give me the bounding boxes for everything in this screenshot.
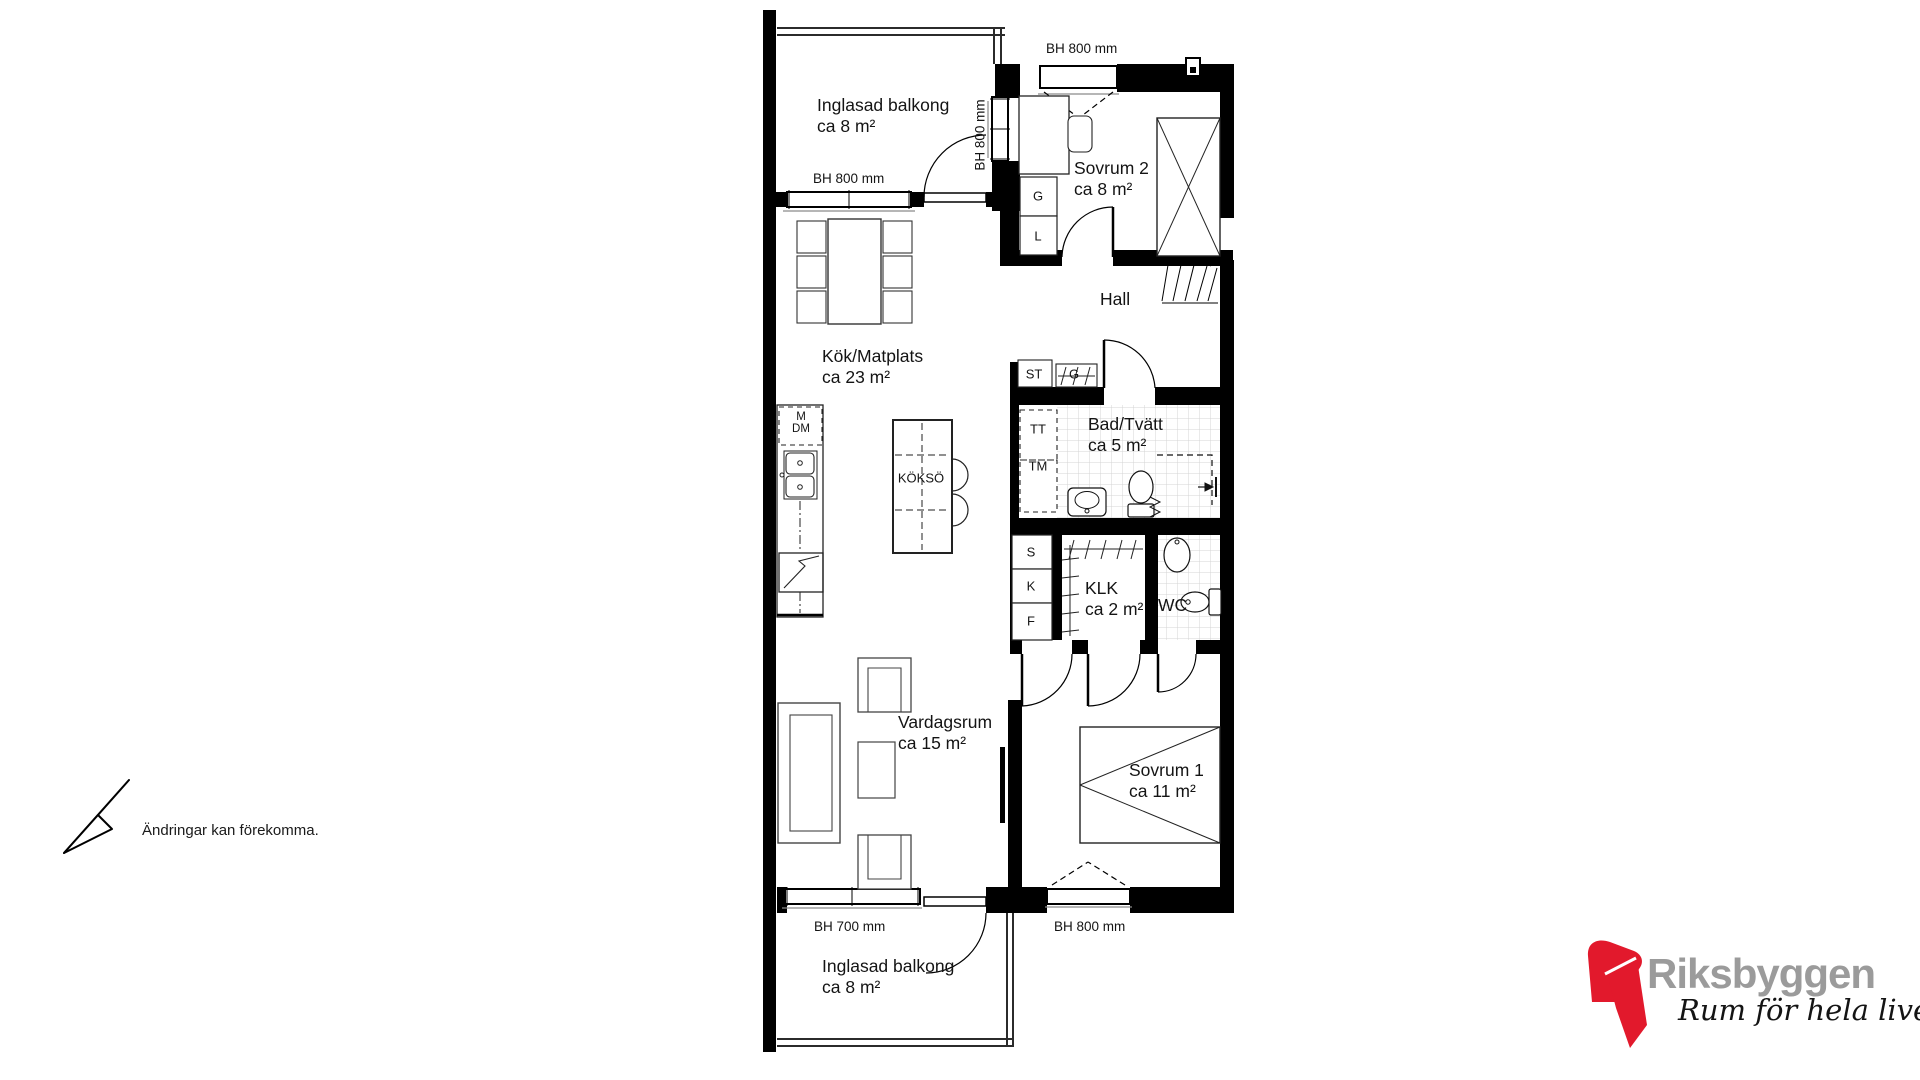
room-label-wc: WC: [1158, 595, 1187, 616]
stairwell-hatch: [1162, 265, 1218, 303]
room-name: Vardagsrum: [898, 712, 992, 733]
room-label-sovrum2: Sovrum 2 ca 8 m²: [1074, 158, 1149, 200]
room-label-balcony-top: Inglasad balkong ca 8 m²: [817, 95, 949, 137]
ventilation-icon: [1186, 58, 1200, 76]
kitchen-island-label: KÖKSÖ: [898, 471, 944, 486]
dishwasher-label: DM: [779, 424, 823, 436]
window-height-label-sovrum2: BH 800 mm: [1046, 41, 1117, 56]
room-label-klk: KLK ca 2 m²: [1085, 578, 1143, 620]
room-name: Inglasad balkong: [822, 956, 954, 977]
room-area: ca 8 m²: [1074, 179, 1149, 200]
room-area: ca 8 m²: [822, 977, 954, 998]
wardrobe-g-sovrum2-label: G: [1033, 189, 1043, 204]
dining-table: [797, 219, 912, 324]
riksbyggen-logo-icon: [1585, 936, 1653, 1052]
window-height-label-vardagsrum: BH 700 mm: [814, 919, 885, 934]
brand-name: Riksbyggen: [1647, 950, 1875, 998]
room-name: Sovrum 2: [1074, 158, 1149, 179]
north-arrow-icon: [50, 768, 140, 863]
floor-plan-page: Inglasad balkong ca 8 m² BH 800 mm BH 80…: [0, 0, 1920, 1080]
room-name: Bad/Tvätt: [1088, 414, 1163, 435]
disclaimer-text: Ändringar kan förekomma.: [142, 822, 319, 839]
room-area: ca 5 m²: [1088, 435, 1163, 456]
freezer-f-label: F: [1027, 614, 1035, 629]
floor-plan-drawing: [0, 0, 1920, 1080]
room-area: ca 8 m²: [817, 116, 949, 137]
brand-tagline: Rum för hela livet: [1678, 993, 1920, 1027]
tumble-dryer-label: TT: [1030, 422, 1046, 437]
room-area: ca 2 m²: [1085, 599, 1143, 620]
microwave-dishwasher-label: M DM: [779, 412, 823, 435]
room-label-kok-matplats: Kök/Matplats ca 23 m²: [822, 346, 923, 388]
room-area: ca 23 m²: [822, 367, 923, 388]
window-height-label-balcony-top: BH 800 mm: [813, 171, 884, 186]
room-name: Inglasad balkong: [817, 95, 949, 116]
room-label-vardagsrum: Vardagsrum ca 15 m²: [898, 712, 992, 754]
window-height-label-balcony-side: BH 800 mm: [973, 99, 988, 170]
kitchen-island: [893, 420, 968, 553]
room-area: ca 15 m²: [898, 733, 992, 754]
washing-machine-label: TM: [1029, 459, 1048, 474]
vardagsrum-furniture: [778, 658, 1005, 889]
room-label-hall: Hall: [1100, 289, 1130, 310]
room-label-balcony-bottom: Inglasad balkong ca 8 m²: [822, 956, 954, 998]
room-label-sovrum1: Sovrum 1 ca 11 m²: [1129, 760, 1204, 802]
fridge-k-label: K: [1027, 579, 1036, 594]
kitchen-counter: [777, 405, 823, 617]
room-area: ca 11 m²: [1129, 781, 1204, 802]
window-height-label-sovrum1: BH 800 mm: [1054, 919, 1125, 934]
room-name: Kök/Matplats: [822, 346, 923, 367]
room-name: KLK: [1085, 578, 1143, 599]
cleaning-closet-st-label: ST: [1026, 367, 1043, 382]
wardrobe-g-hall-label: G: [1069, 367, 1079, 382]
pantry-s-label: S: [1027, 545, 1036, 560]
microwave-label: M: [779, 412, 823, 424]
room-label-bad-tvatt: Bad/Tvätt ca 5 m²: [1088, 414, 1163, 456]
room-name: Sovrum 1: [1129, 760, 1204, 781]
linen-closet-l-label: L: [1034, 229, 1041, 244]
